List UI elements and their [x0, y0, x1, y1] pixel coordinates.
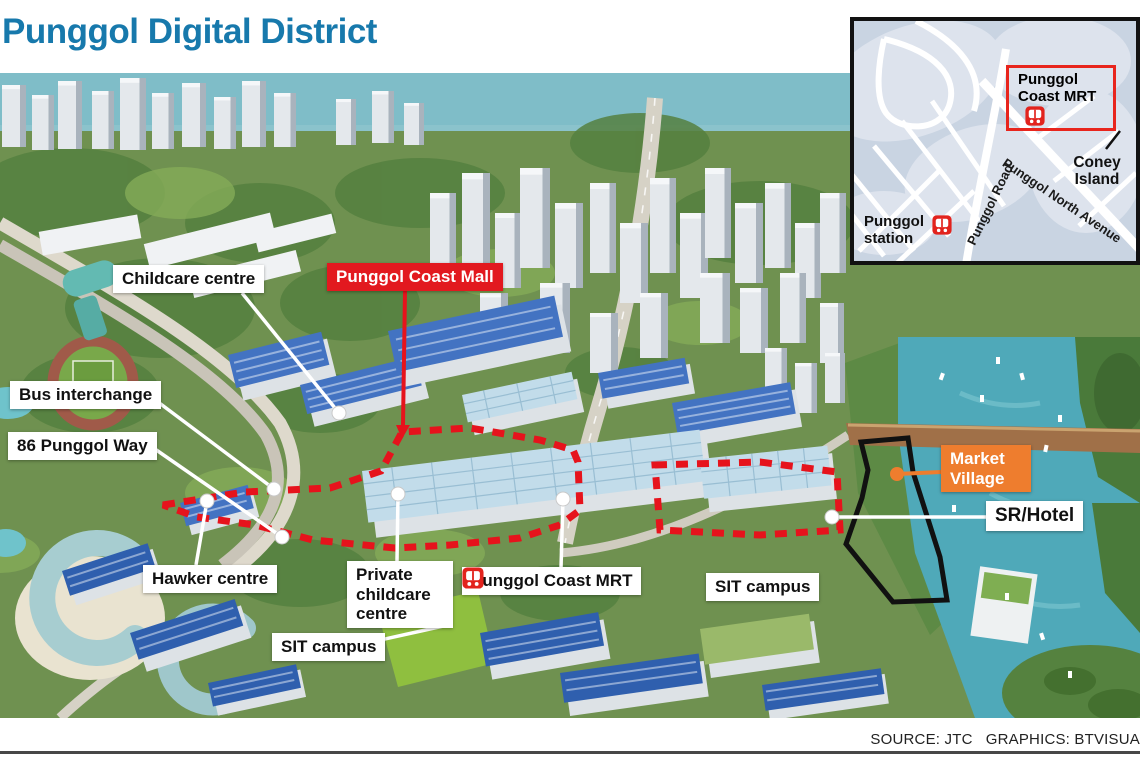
label-86-punggol-way: 86 Punggol Way	[8, 432, 157, 460]
jetty-building	[970, 566, 1037, 643]
label-childcare-centre: Childcare centre	[113, 265, 264, 293]
label-private-childcare-centre: Private childcare centre	[347, 561, 453, 628]
page-title: Punggol Digital District	[2, 12, 377, 52]
label-punggol-coast-mrt-text: Punggol Coast MRT	[471, 571, 632, 591]
news-graphic: Punggol Digital District	[0, 0, 1140, 760]
mrt-icon	[932, 215, 952, 235]
mrt-icon	[1025, 106, 1045, 126]
label-hawker-centre: Hawker centre	[143, 565, 277, 593]
inset-punggol-coast-mrt-text: Punggol Coast MRT	[1018, 72, 1108, 106]
mrt-icon	[462, 567, 484, 589]
label-bus-interchange: Bus interchange	[10, 381, 161, 409]
inset-punggol-station-label: Punggol station	[864, 213, 934, 248]
label-punggol-coast-mall: Punggol Coast Mall	[327, 263, 503, 291]
label-sit-campus-west: SIT campus	[272, 633, 385, 661]
footer-rule	[0, 751, 1140, 754]
source-credit: SOURCE: JTC GRAPHICS: BTVISUA	[870, 731, 1140, 748]
inset-punggol-coast-mrt-box: Punggol Coast MRT	[1006, 65, 1116, 131]
label-sr-hotel: SR/Hotel	[986, 501, 1083, 531]
label-sit-campus-east: SIT campus	[706, 573, 819, 601]
inset-coney-island-label: Coney Island	[1058, 155, 1136, 188]
inset-map: Punggol Coast MRT Coney Island Punggol s…	[850, 17, 1140, 265]
label-punggol-coast-mrt: Punggol Coast MRT	[462, 567, 641, 595]
label-market-village: Market Village	[941, 445, 1031, 492]
